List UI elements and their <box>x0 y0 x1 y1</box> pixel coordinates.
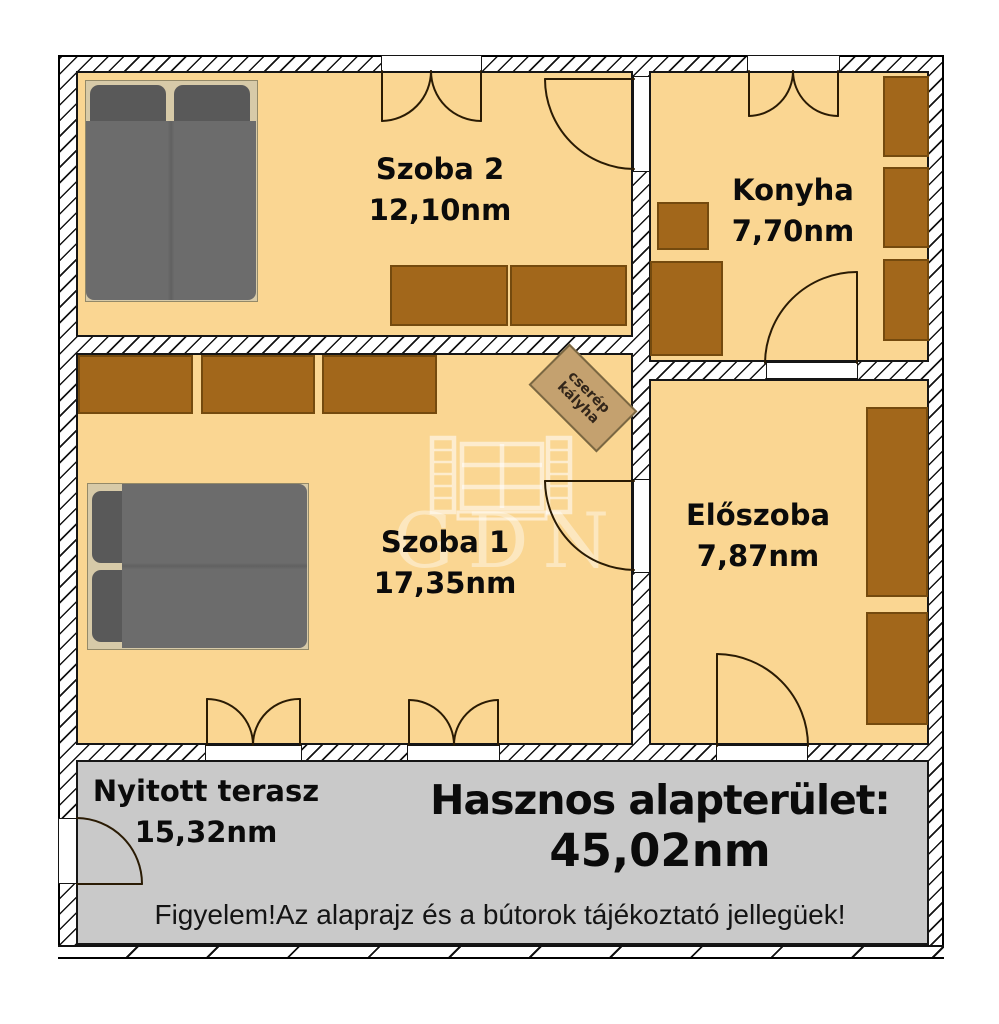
disclaimer-text: Figyelem!Az alaprajz és a bútorok tájéko… <box>70 899 930 931</box>
room-name: Előszoba <box>638 495 878 536</box>
door-opening-konyha-eloszoba <box>766 362 858 379</box>
room-name: Konyha <box>683 170 903 211</box>
window-szoba1-left <box>205 745 302 761</box>
wardrobe-eloszoba <box>866 612 928 725</box>
window-szoba2 <box>381 55 482 72</box>
room-area: 15,32nm <box>72 812 340 853</box>
room-area: 12,10nm <box>320 190 560 231</box>
room-name: Nyitott terasz <box>72 771 340 812</box>
label-terasz: Nyitott terasz 15,32nm <box>72 771 340 852</box>
cabinet-szoba2 <box>390 265 508 326</box>
cabinet-szoba1 <box>322 355 437 414</box>
kitchen-cabinet <box>883 76 929 157</box>
summary-value: 45,02nm <box>390 823 930 879</box>
double-bed-szoba1 <box>87 483 309 650</box>
cabinet-szoba1 <box>201 355 315 414</box>
room-name: Szoba 1 <box>325 522 565 563</box>
kitchen-cabinet-large <box>650 261 723 356</box>
window-szoba1-right <box>407 745 500 761</box>
entrance-door-opening <box>716 745 808 761</box>
room-area: 7,87nm <box>638 536 878 577</box>
label-szoba1: Szoba 1 17,35nm <box>325 522 565 603</box>
floor-area-summary: Hasznos alapterület: 45,02nm <box>390 778 930 879</box>
door-opening-szoba2-konyha <box>633 76 650 172</box>
room-area: 7,70nm <box>683 211 903 252</box>
label-eloszoba: Előszoba 7,87nm <box>638 495 878 576</box>
blanket <box>122 484 307 648</box>
cabinet-szoba1 <box>78 355 193 414</box>
kitchen-cabinet <box>883 259 929 341</box>
floorplan: cserép kályha GDN Szoba 2 12,10nm Konyha <box>0 0 999 1024</box>
room-name: Szoba 2 <box>320 149 560 190</box>
window-konyha <box>747 55 840 72</box>
label-konyha: Konyha 7,70nm <box>683 170 903 251</box>
double-bed-szoba2 <box>85 80 258 302</box>
terrace-open-edge <box>58 945 944 959</box>
room-area: 17,35nm <box>325 563 565 604</box>
summary-title: Hasznos alapterület: <box>390 778 930 823</box>
cabinet-szoba2 <box>510 265 627 326</box>
blanket <box>86 121 256 300</box>
label-szoba2: Szoba 2 12,10nm <box>320 149 560 230</box>
